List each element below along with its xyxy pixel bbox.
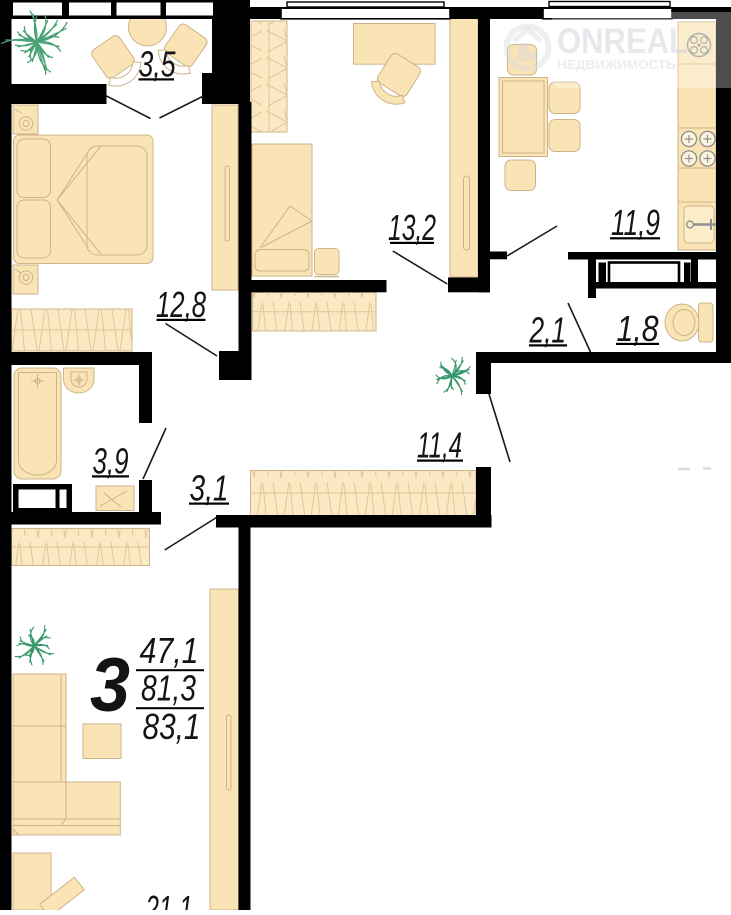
svg-text:11,4: 11,4 — [417, 425, 462, 466]
svg-text:81,3: 81,3 — [141, 668, 196, 709]
svg-text:ONREAL: ONREAL — [557, 22, 688, 61]
svg-text:21,1: 21,1 — [145, 888, 193, 910]
svg-text:11,9: 11,9 — [611, 202, 660, 243]
svg-text:47,1: 47,1 — [140, 630, 199, 671]
svg-text:НЕДВИЖИМОСТЬ: НЕДВИЖИМОСТЬ — [557, 57, 676, 72]
svg-text:3: 3 — [90, 643, 130, 728]
svg-text:83,1: 83,1 — [143, 706, 201, 747]
svg-text:3,1: 3,1 — [190, 468, 229, 509]
